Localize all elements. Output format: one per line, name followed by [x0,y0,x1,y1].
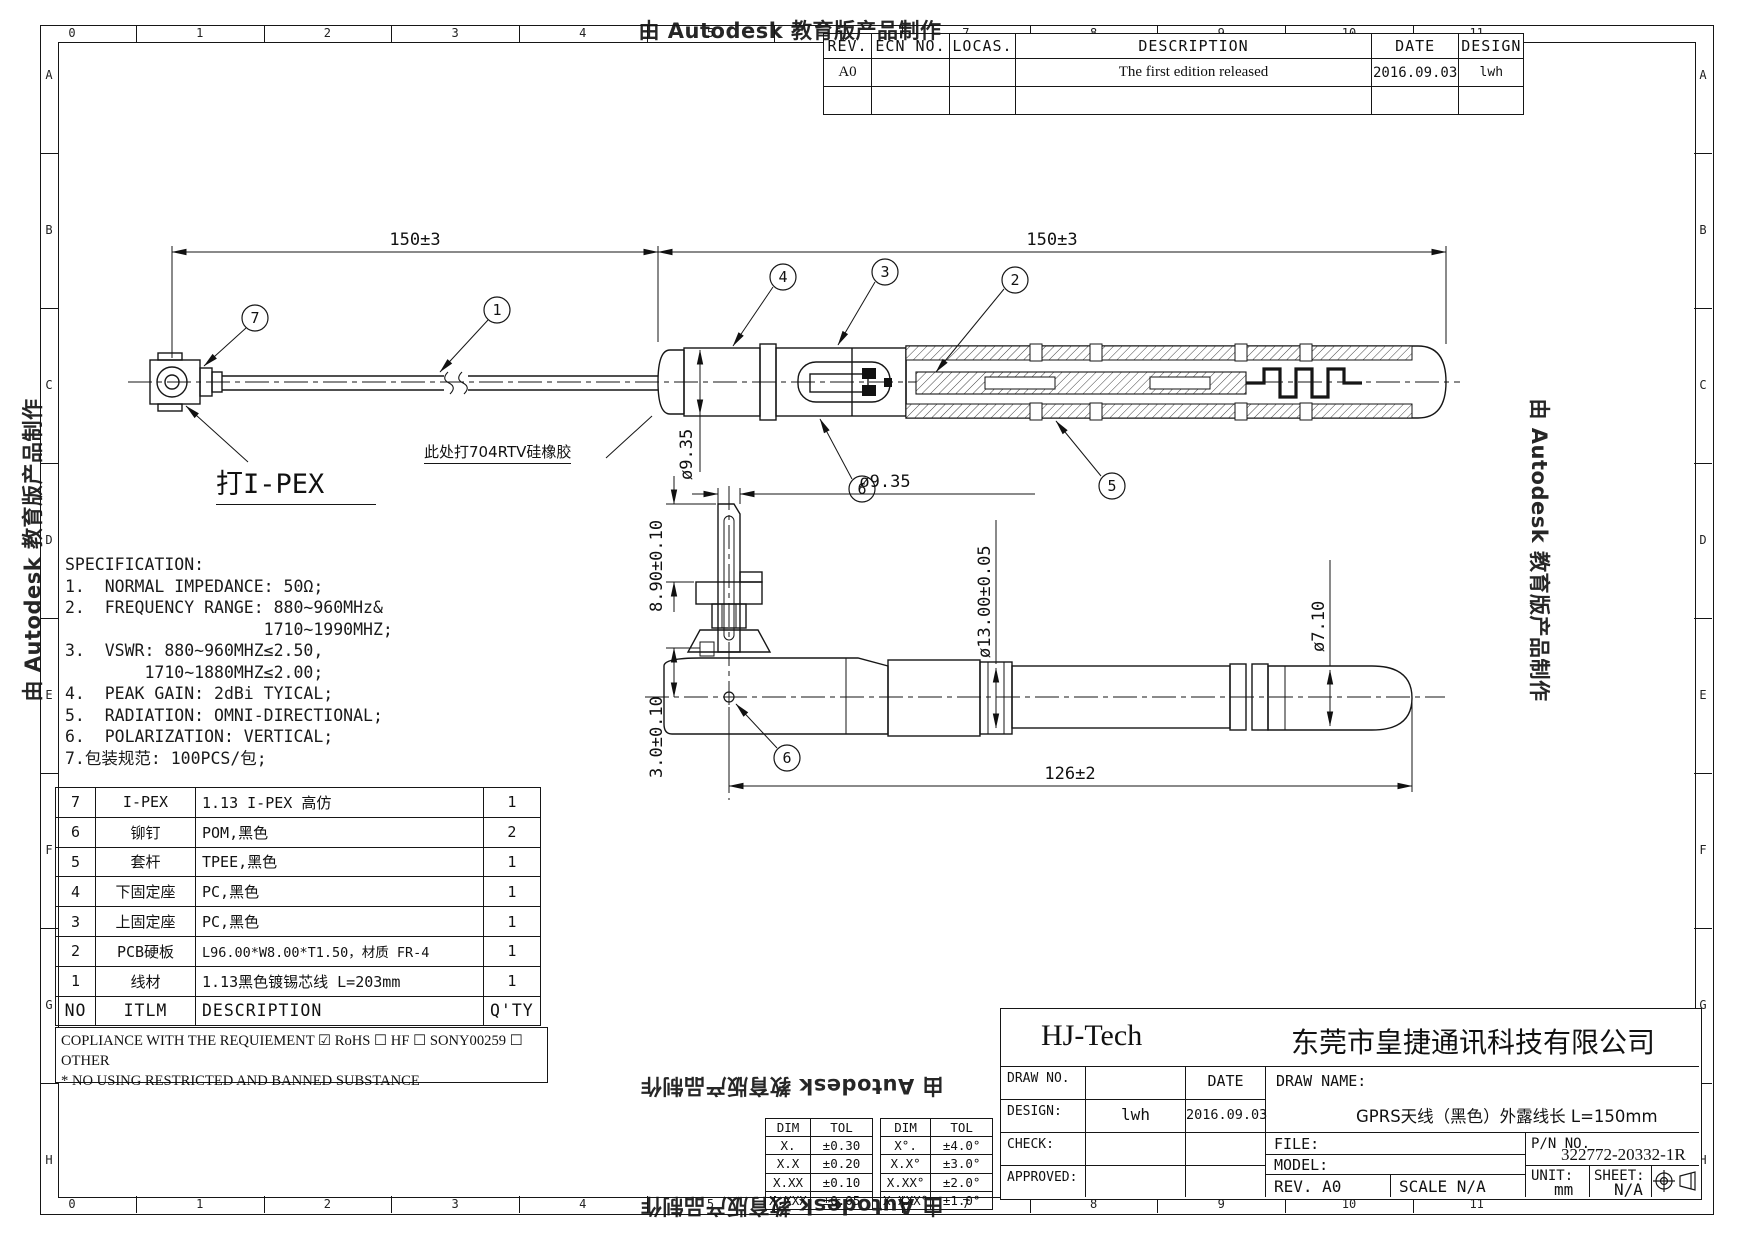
dim-dia-935-top: ø9.35 [677,429,697,480]
bom-cell: PC,黑色 [196,877,484,907]
bom-header-row: NOITLMDESCRIPTIONQ'TY [56,996,541,1026]
date-label: DATE [1186,1067,1266,1100]
bom-cell: 1 [484,936,541,966]
bom-header-cell: NO [56,996,96,1026]
bom-row: 6铆钉POM,黑色2 [56,817,541,847]
rev-label: REV. A0 [1266,1175,1391,1197]
bom-row: 2PCB硬板L96.00*W8.00*T1.50，材质 FR-41 [56,936,541,966]
revision-row: A0The first edition released2016.09.03lw… [824,59,1524,87]
tol-cell: ±2.0° [931,1173,993,1191]
bom-cell: 铆钉 [96,817,196,847]
tol-cell: ±0.30 [811,1137,873,1155]
bom-table: 7I-PEX1.13 I-PEX 高仿16铆钉POM,黑色25套杆TPEE,黑色… [55,787,541,1026]
spec-line: 6. POLARIZATION: VERTICAL; [65,726,393,748]
bom-body: 7I-PEX1.13 I-PEX 高仿16铆钉POM,黑色25套杆TPEE,黑色… [56,788,541,1026]
bom-cell: 线材 [96,966,196,996]
balloon-2: 2 [1010,271,1019,289]
revision-cell: lwh [1459,59,1524,87]
bom-cell: 1 [56,966,96,996]
specification-block: SPECIFICATION:1. NORMAL IMPEDANCE: 50Ω;2… [65,554,393,769]
tol-row: X.XX±0.10 [766,1173,873,1191]
bom-cell: PCB硬板 [96,936,196,966]
spec-line: 3. VSWR: 880~960MHZ≤2.50, [65,640,393,662]
dim-body-length: 150±3 [1026,230,1077,250]
bom-cell: 上固定座 [96,907,196,937]
bom-cell: 7 [56,788,96,818]
bom-header-cell: DESCRIPTION [196,996,484,1026]
compliance-line-1: COPLIANCE WITH THE REQUIEMENT ☑ RoHS ☐ H… [61,1031,542,1071]
spec-line: 4. PEAK GAIN: 2dBi TYICAL; [65,683,393,705]
watermark-top: 由 Autodesk 教育版产品制作 [630,15,950,45]
approved-label: APPROVED: [1001,1166,1086,1197]
tol-header-cell: TOL [811,1119,873,1137]
balloon-4: 4 [778,268,787,286]
design-label: DESIGN: [1001,1100,1086,1133]
sheet-value: N/A [1614,1180,1643,1199]
tol-row: X.X±0.20 [766,1155,873,1173]
bom-row: 4下固定座PC,黑色1 [56,877,541,907]
bottom-view: ø9.35 8.90±0.10 3.0±0.10 ø13.00±0.05 ø7.… [645,472,1445,800]
design-date-value: 2016.09.03 [1186,1100,1266,1133]
rtv-note: 此处打704RTV硅橡胶 [424,441,571,464]
tol-cell: X°. [881,1137,931,1155]
spec-line: 1710~1880MHZ≤2.00; [65,662,393,684]
bom-header-cell: Q'TY [484,996,541,1026]
tol-cell: ±0.20 [811,1155,873,1173]
tol-header-row: DIMTOL [881,1119,993,1137]
spec-line: 1. NORMAL IMPEDANCE: 50Ω; [65,576,393,598]
tol-row: X.X°±3.0° [881,1155,993,1173]
tol-row: X°.±4.0° [881,1137,993,1155]
third-angle-projection-icon [1652,1166,1698,1196]
tol-cell: X.XX° [881,1173,931,1191]
scale-label: SCALE N/A [1391,1175,1526,1197]
revision-cell [872,59,950,87]
bom-cell: TPEE,黑色 [196,847,484,877]
balloon-3: 3 [880,263,889,281]
revision-cell: 2016.09.03 [1372,59,1459,87]
watermark-bottom-inner: 由 Autodesk 教育版产品制作 [632,1072,952,1102]
bom-cell: L96.00*W8.00*T1.50，材质 FR-4 [196,936,484,966]
watermark-bottom-edge: 由 Autodesk 教育版产品制作 [632,1192,952,1222]
unit-value: mm [1554,1180,1573,1199]
watermark-left: 由 Autodesk 教育版产品制作 [17,390,47,710]
revision-cell [824,87,872,115]
bom-cell: I-PEX [96,788,196,818]
bom-cell: 3 [56,907,96,937]
tol-cell: ±3.0° [931,1155,993,1173]
dim-cable-length: 150±3 [389,230,440,250]
company-full: 东莞市皇捷通讯科技有限公司 [1291,1021,1655,1061]
spec-line: 2. FREQUENCY RANGE: 880~960MHz& [65,597,393,619]
bom-row: 3上固定座PC,黑色1 [56,907,541,937]
company-short: HJ-Tech [1041,1019,1142,1053]
bom-cell: 2 [56,936,96,966]
bom-cell: 6 [56,817,96,847]
dim-dia-935-bottom: ø9.35 [859,472,910,492]
tol-cell: X. [766,1137,811,1155]
tol-header-cell: DIM [881,1119,931,1137]
bom-cell: PC,黑色 [196,907,484,937]
compliance-box: COPLIANCE WITH THE REQUIEMENT ☑ RoHS ☐ H… [55,1027,548,1083]
balloon-6-bottom: 6 [782,749,791,767]
bom-cell: 1 [484,877,541,907]
revision-header-cell: DATE [1372,34,1459,59]
revision-cell [872,87,950,115]
balloon-7: 7 [250,309,259,327]
revision-cell [1016,87,1372,115]
dim-dia-1300: ø13.00±0.05 [975,545,995,658]
balloon-5: 5 [1107,477,1116,495]
model-label: MODEL: [1266,1155,1526,1175]
tol-header-cell: DIM [766,1119,811,1137]
revision-cell: The first edition released [1016,59,1372,87]
drawing-sheet: 01234567891011 01234567891011 ABCDEFGH A… [0,0,1755,1241]
bom-header-cell: ITLM [96,996,196,1026]
draw-no-label: DRAW NO. [1001,1067,1086,1100]
revision-cell [1459,87,1524,115]
tol-cell: X.X [766,1155,811,1173]
bom-cell: 1 [484,788,541,818]
bom-row: 1线材1.13黑色镀锡芯线 L=203mm1 [56,966,541,996]
pn-value: 322772-20332-1R [1561,1145,1686,1165]
tol-cell: ±4.0° [931,1137,993,1155]
spec-line: 7.包装规范: 100PCS/包; [65,748,393,770]
spec-line: 1710~1990MHZ; [65,619,393,641]
dim-height-890: 8.90±0.10 [647,520,667,612]
ipex-label: 打I-PEX [216,462,376,505]
spec-line: 5. RADIATION: OMNI-DIRECTIONAL; [65,705,393,727]
dim-offset-30: 3.0±0.10 [647,696,667,778]
revision-body: A0The first edition released2016.09.03lw… [824,59,1524,115]
file-label: FILE: [1266,1133,1526,1155]
revision-cell [950,87,1016,115]
bom-cell: 1 [484,966,541,996]
bom-row: 7I-PEX1.13 I-PEX 高仿1 [56,788,541,818]
revision-header-cell: DESCRIPTION [1016,34,1372,59]
balloon-1: 1 [492,301,501,319]
dim-length-126: 126±2 [1044,764,1095,784]
draw-name-label: DRAW NAME: [1276,1072,1366,1090]
bom-cell: POM,黑色 [196,817,484,847]
tol-cell: X.XX [766,1173,811,1191]
bom-cell: 下固定座 [96,877,196,907]
spec-line: SPECIFICATION: [65,554,393,576]
tol-header-cell: TOL [931,1119,993,1137]
tol-row: X.±0.30 [766,1137,873,1155]
tol-row: X.XX°±2.0° [881,1173,993,1191]
revision-table: REV.ECN NO.LOCAS.DESCRIPTIONDATEDESIGN A… [823,33,1524,115]
revision-cell [950,59,1016,87]
bom-cell: 套杆 [96,847,196,877]
design-value: lwh [1086,1100,1186,1133]
revision-header-cell: DESIGN [1459,34,1524,59]
dim-dia-710: ø7.10 [1309,601,1329,652]
watermark-right: 由 Autodesk 教育版产品制作 [1525,390,1555,710]
revision-header-cell: LOCAS. [950,34,1016,59]
tol-header-row: DIMTOL [766,1119,873,1137]
bom-row: 5套杆TPEE,黑色1 [56,847,541,877]
tol-cell: ±0.10 [811,1173,873,1191]
revision-cell: A0 [824,59,872,87]
revision-cell [1372,87,1459,115]
bom-cell: 2 [484,817,541,847]
tol-cell: X.X° [881,1155,931,1173]
revision-row [824,87,1524,115]
bom-cell: 1.13黑色镀锡芯线 L=203mm [196,966,484,996]
bom-cell: 1 [484,847,541,877]
check-label: CHECK: [1001,1133,1086,1166]
draw-name-value: GPRS天线（黑色）外露线长 L=150mm [1356,1103,1658,1127]
title-block: HJ-Tech 东莞市皇捷通讯科技有限公司 DRAW NO. DATE DESI… [1000,1008,1702,1200]
bom-cell: 1 [484,907,541,937]
bom-cell: 5 [56,847,96,877]
compliance-line-2: * NO USING RESTRICTED AND BANNED SUBSTAN… [61,1071,542,1091]
bom-cell: 1.13 I-PEX 高仿 [196,788,484,818]
bom-cell: 4 [56,877,96,907]
